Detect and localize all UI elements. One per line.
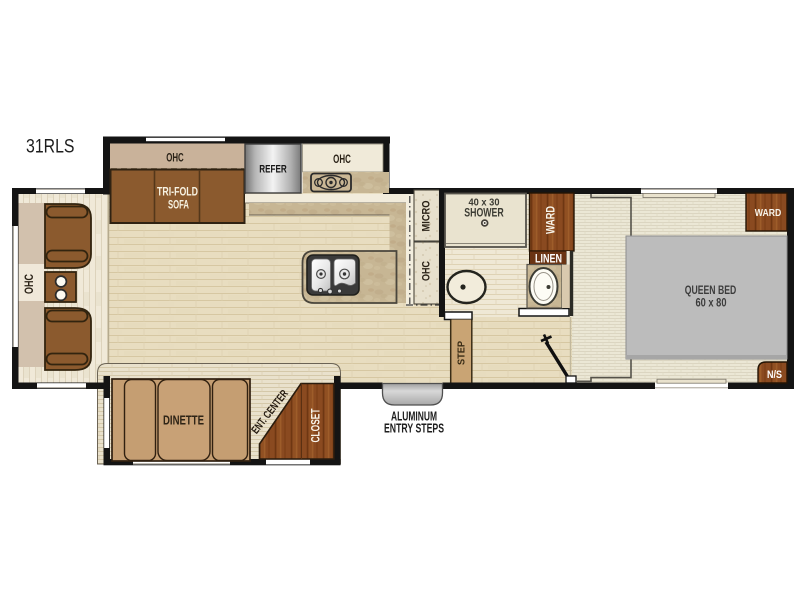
svg-text:WARD: WARD [544, 206, 558, 234]
svg-text:SOFA: SOFA [168, 198, 189, 212]
svg-text:WARD: WARD [755, 207, 782, 219]
svg-text:N/S: N/S [767, 369, 782, 381]
svg-text:MICRO: MICRO [421, 200, 433, 231]
svg-text:OHC: OHC [421, 261, 433, 281]
svg-text:31RLS: 31RLS [26, 137, 75, 158]
svg-text:OHC: OHC [166, 150, 184, 164]
svg-text:ENTRY STEPS: ENTRY STEPS [384, 421, 444, 436]
svg-text:STEP: STEP [455, 341, 467, 365]
svg-text:OHC: OHC [24, 274, 36, 294]
svg-text:REFER: REFER [259, 163, 287, 175]
svg-text:60 x 80: 60 x 80 [696, 298, 727, 310]
svg-text:QUEEN BED: QUEEN BED [685, 285, 737, 297]
svg-text:LINEN: LINEN [535, 251, 562, 265]
svg-text:OHC: OHC [333, 152, 351, 166]
svg-text:TRI-FOLD: TRI-FOLD [157, 185, 198, 199]
svg-text:CLOSET: CLOSET [309, 408, 323, 442]
svg-text:DINETTE: DINETTE [163, 414, 204, 428]
svg-text:40 x 30: 40 x 30 [469, 196, 500, 208]
svg-text:SHOWER: SHOWER [464, 208, 504, 220]
